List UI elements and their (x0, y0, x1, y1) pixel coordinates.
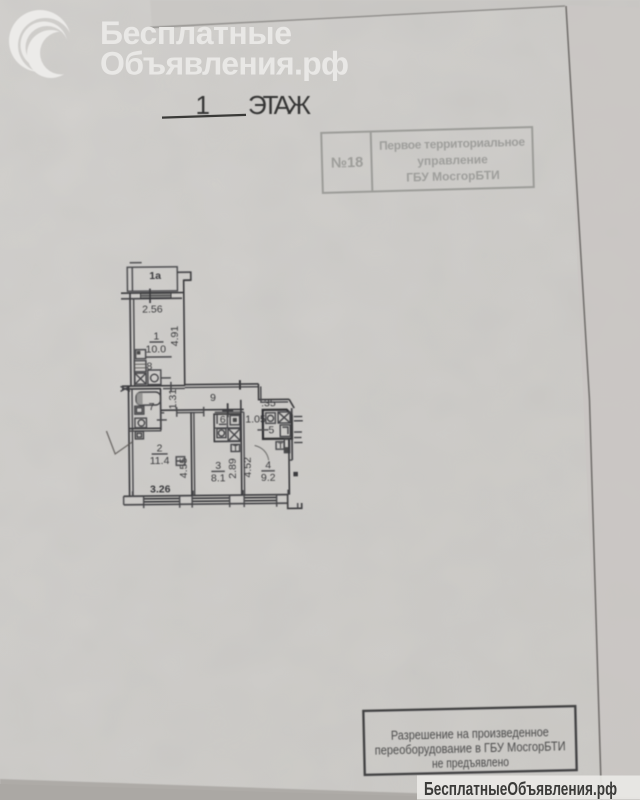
svg-text:11.4: 11.4 (150, 455, 170, 467)
svg-text:Объявления.рф: Объявления.рф (100, 46, 349, 82)
svg-text:4.91: 4.91 (169, 326, 181, 347)
svg-text:2.89: 2.89 (227, 458, 239, 479)
svg-text:4.52: 4.52 (242, 457, 254, 478)
svg-text:2.56: 2.56 (142, 303, 163, 315)
svg-text:ГБУ МосгорБТИ: ГБУ МосгорБТИ (406, 168, 500, 185)
svg-text:9: 9 (210, 392, 216, 404)
svg-text:.35: .35 (261, 397, 276, 409)
svg-text:5: 5 (268, 424, 274, 436)
svg-text:№18: №18 (331, 155, 364, 172)
svg-text:3: 3 (215, 460, 221, 472)
svg-text:не предъявлено: не предъявлено (432, 754, 509, 771)
svg-text:8.1: 8.1 (211, 472, 226, 484)
svg-text:2: 2 (157, 442, 163, 454)
svg-text:9.2: 9.2 (261, 472, 276, 484)
svg-text:7: 7 (149, 401, 155, 413)
svg-text:1а: 1а (149, 270, 161, 282)
svg-text:1.31: 1.31 (167, 389, 179, 410)
svg-text:10.0: 10.0 (146, 343, 167, 355)
svg-text:ЭТАЖ: ЭТАЖ (248, 90, 311, 120)
svg-text:БесплатныеОбъявления.рф: БесплатныеОбъявления.рф (424, 778, 617, 799)
svg-text:1: 1 (153, 330, 159, 342)
svg-text:управление: управление (417, 152, 488, 168)
svg-text:3.26: 3.26 (150, 483, 171, 495)
svg-text:4: 4 (265, 459, 271, 471)
svg-text:т: т (278, 439, 283, 451)
svg-text:т: т (233, 441, 238, 453)
